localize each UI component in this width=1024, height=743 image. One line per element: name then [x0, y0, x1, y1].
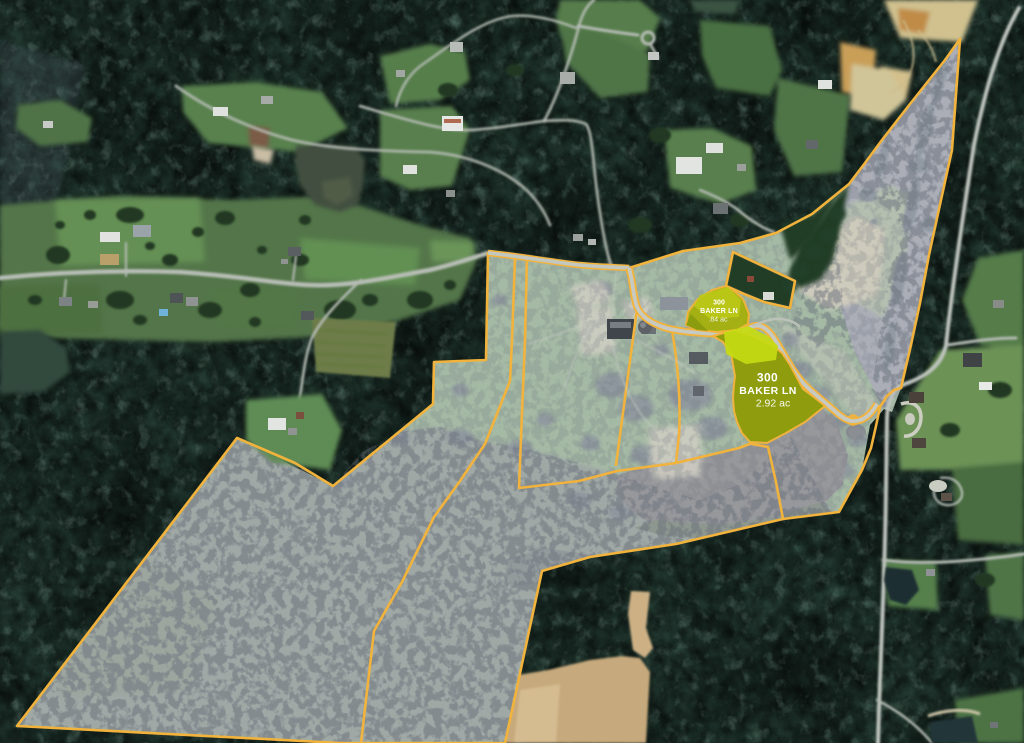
svg-text:2.92 ac: 2.92 ac [756, 398, 790, 410]
svg-text:300: 300 [713, 300, 725, 307]
svg-text:BAKER LN: BAKER LN [700, 308, 738, 315]
svg-text:300: 300 [757, 371, 778, 385]
svg-text:BAKER LN: BAKER LN [739, 385, 796, 397]
svg-text:.84 ac: .84 ac [708, 317, 728, 324]
